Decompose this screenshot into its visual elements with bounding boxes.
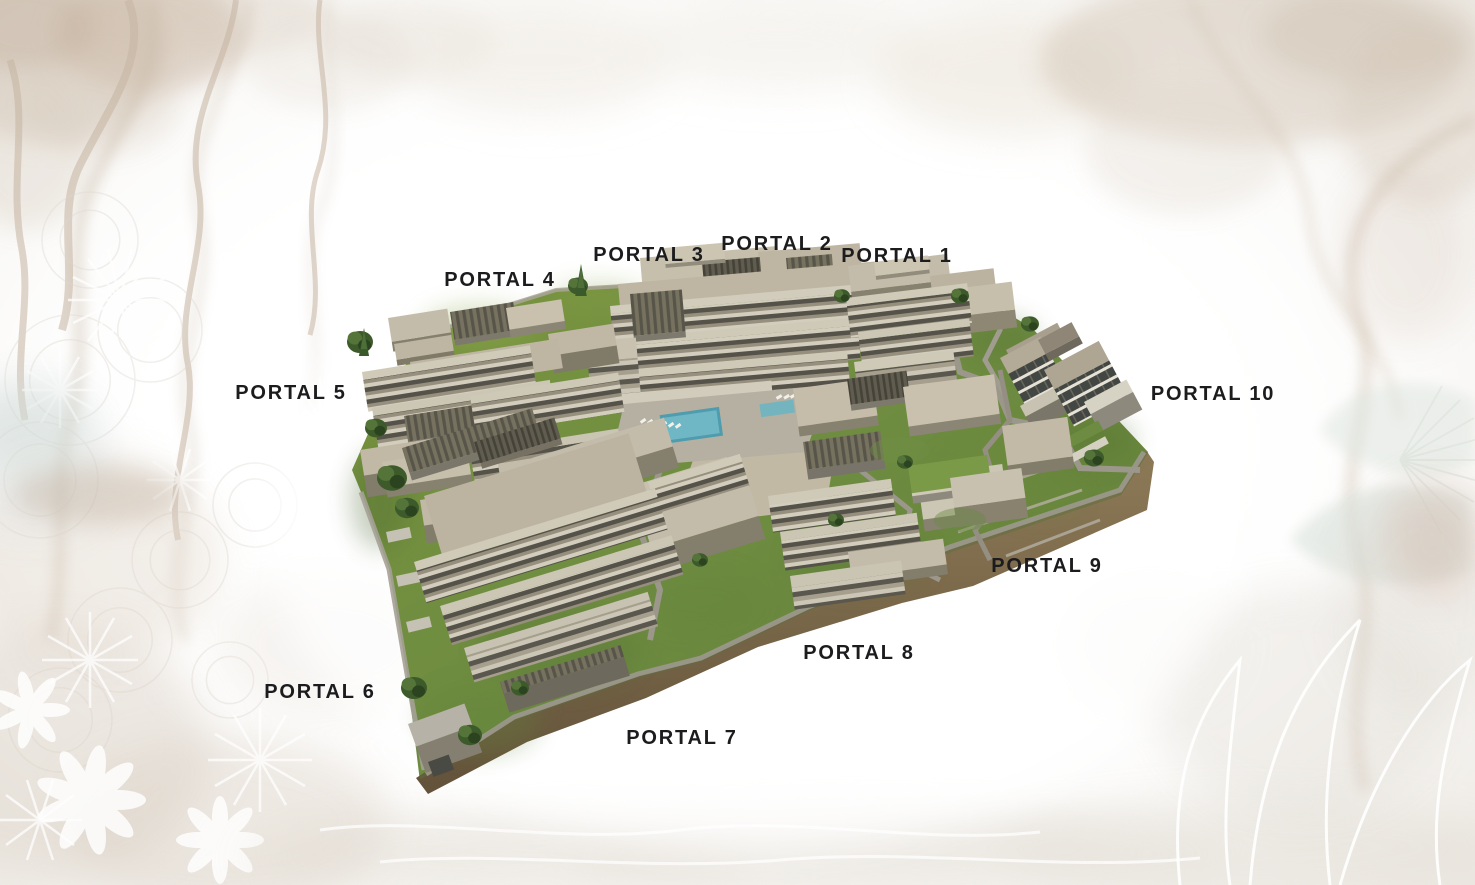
svg-text:PORTAL 9: PORTAL 9	[991, 555, 1102, 577]
svg-text:PORTAL 1: PORTAL 1	[841, 245, 952, 267]
svg-text:PORTAL 2: PORTAL 2	[721, 233, 832, 255]
svg-text:PORTAL 3: PORTAL 3	[593, 244, 704, 266]
svg-text:PORTAL 7: PORTAL 7	[626, 727, 737, 749]
svg-text:PORTAL 5: PORTAL 5	[235, 382, 346, 404]
svg-text:PORTAL 4: PORTAL 4	[444, 269, 555, 291]
svg-text:PORTAL 6: PORTAL 6	[264, 681, 375, 703]
svg-text:PORTAL 10: PORTAL 10	[1151, 383, 1275, 405]
svg-text:PORTAL 8: PORTAL 8	[803, 642, 914, 664]
